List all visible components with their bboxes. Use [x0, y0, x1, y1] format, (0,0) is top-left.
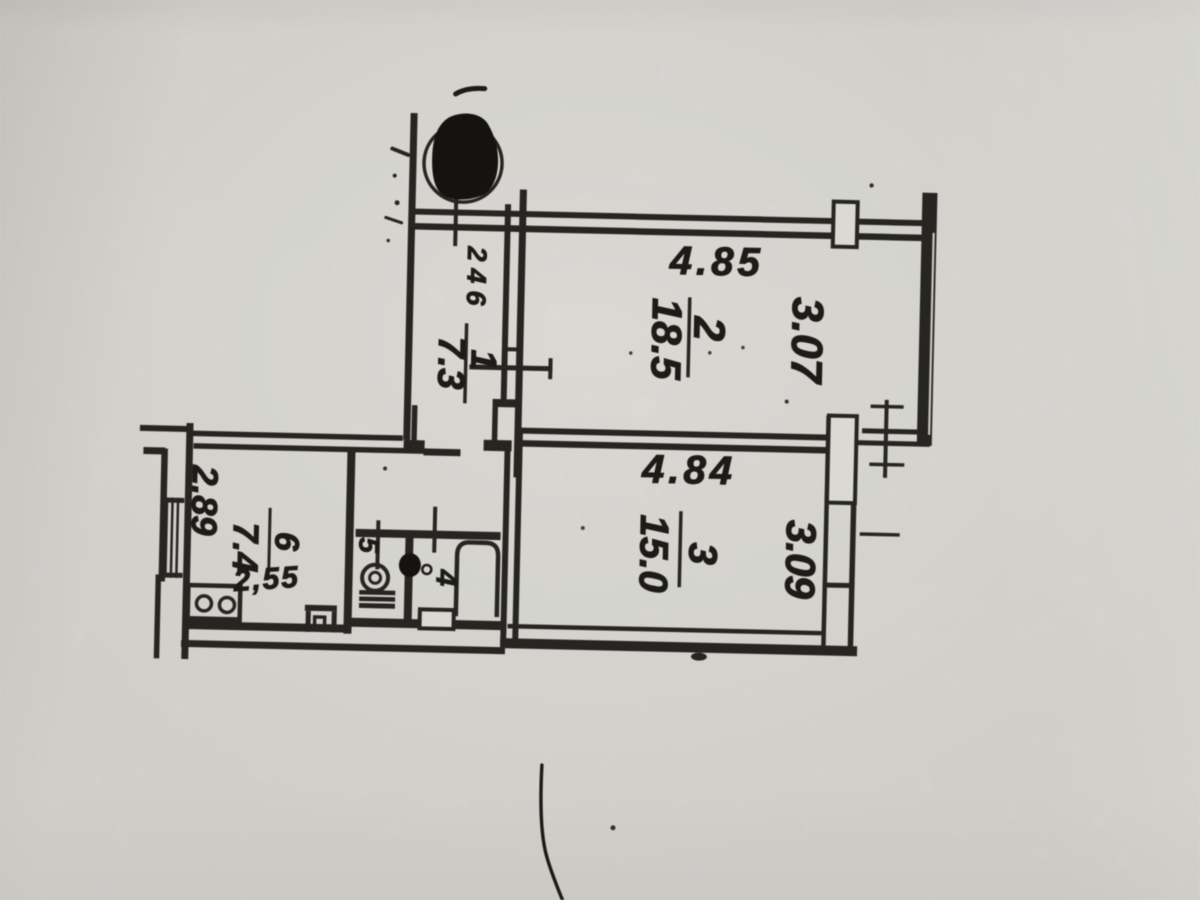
svg-text:3.07: 3.07 [781, 297, 832, 386]
svg-text:2.89: 2.89 [184, 464, 227, 536]
svg-text:15.0: 15.0 [630, 514, 676, 593]
svg-text:4.84: 4.84 [641, 447, 737, 493]
svg-text:2: 2 [684, 315, 734, 342]
svg-text:2,55: 2,55 [232, 561, 301, 598]
svg-text:7.3: 7.3 [429, 336, 472, 390]
svg-text:5: 5 [353, 537, 384, 554]
svg-text:6: 6 [267, 531, 305, 552]
svg-text:246: 246 [461, 245, 493, 313]
svg-text:4.85: 4.85 [668, 239, 764, 285]
svg-text:18.5: 18.5 [642, 297, 691, 380]
svg-text:4: 4 [429, 568, 462, 587]
svg-text:3: 3 [680, 542, 724, 565]
svg-text:3.09: 3.09 [776, 520, 825, 600]
